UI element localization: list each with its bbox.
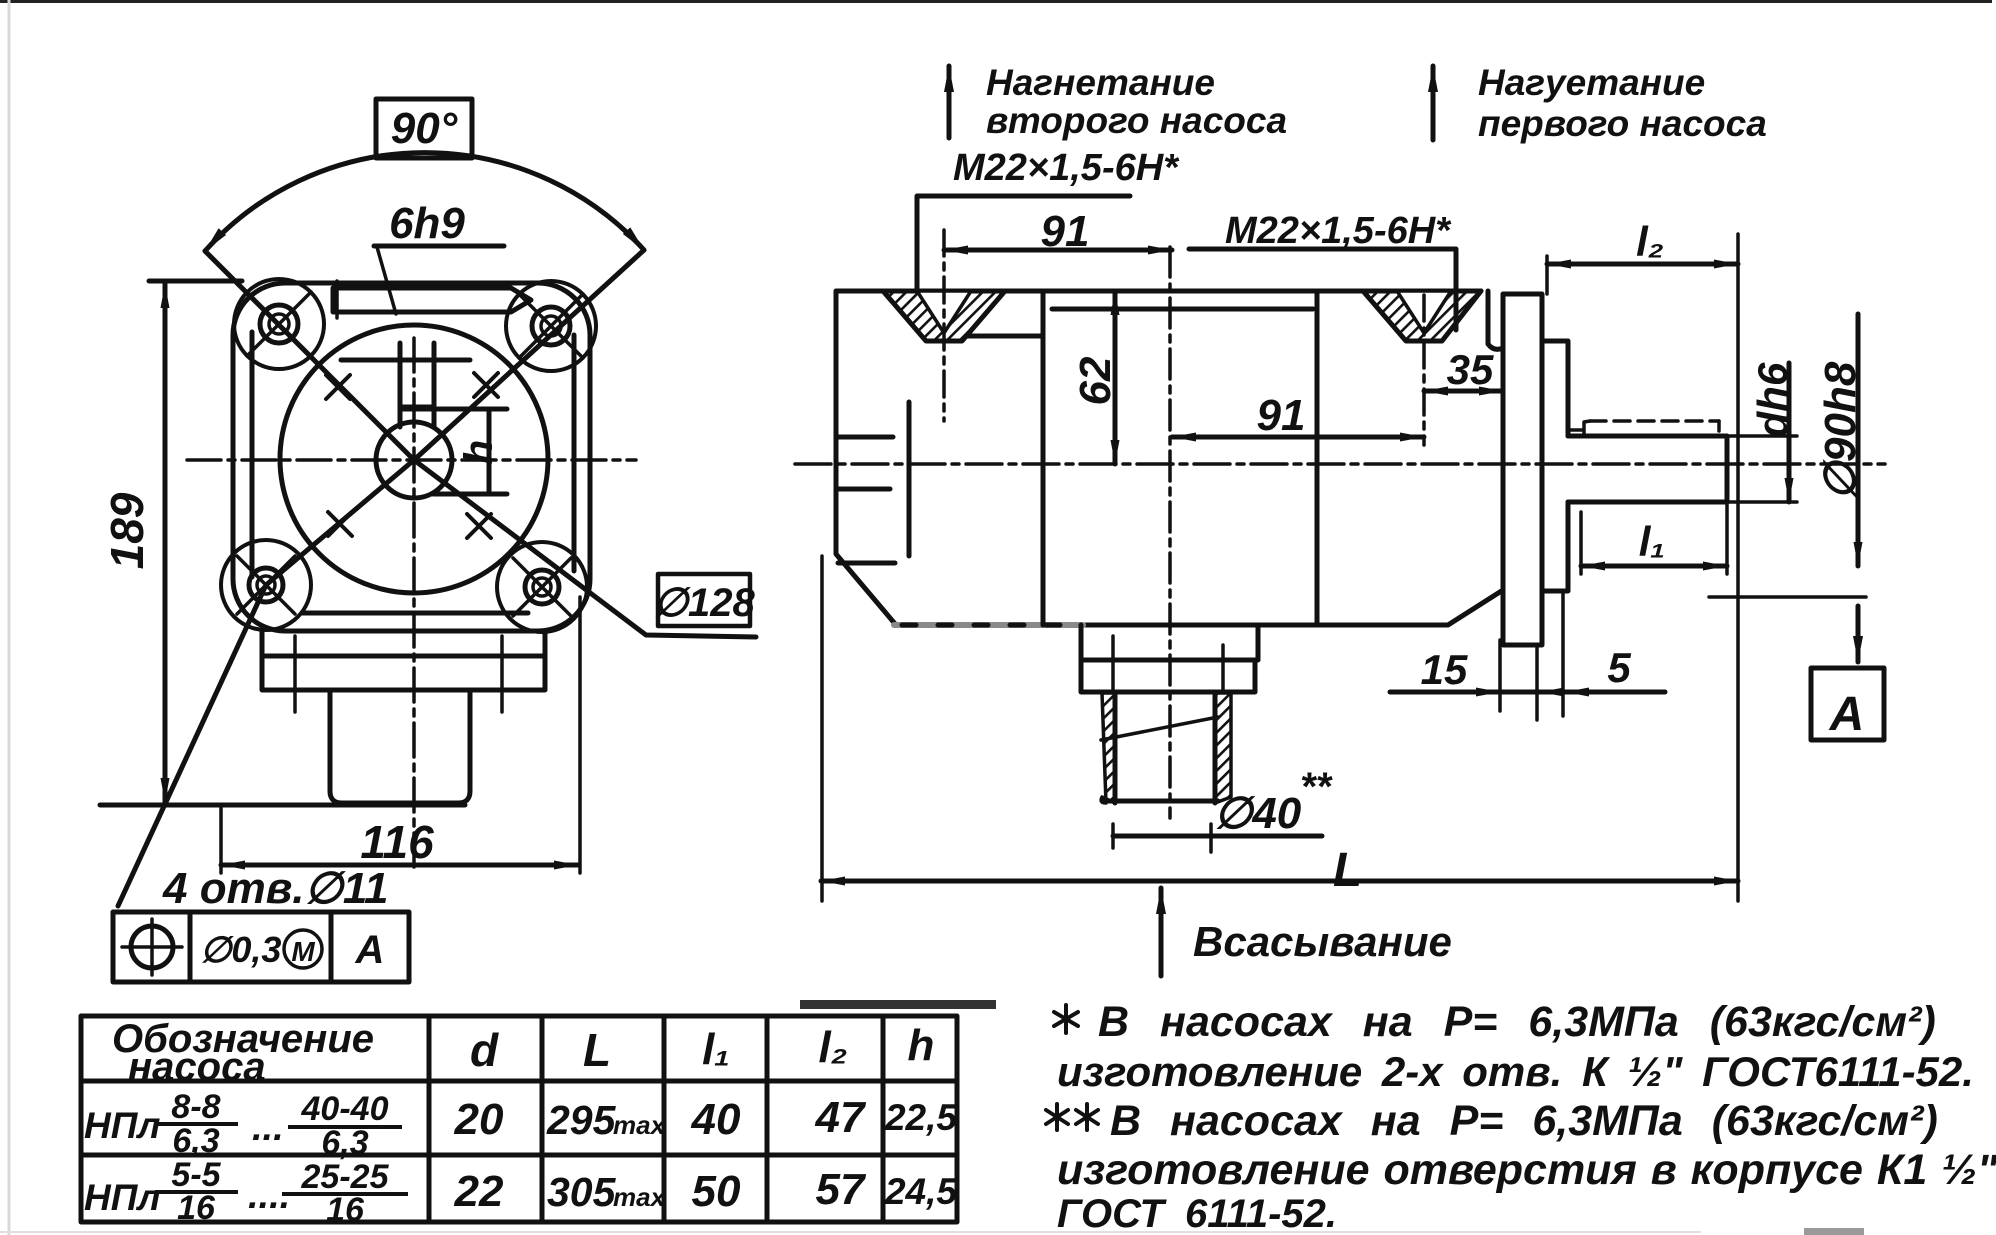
- svg-text:50: 50: [692, 1167, 741, 1216]
- svg-text:В насосах на Р= 6,3МПа (63к: В насосах на Р= 6,3МПа (63кгс/см²): [1110, 1097, 1938, 1145]
- svg-text:91: 91: [1257, 391, 1306, 440]
- svg-text:16: 16: [326, 1191, 365, 1229]
- svg-text:...: ...: [252, 1107, 284, 1149]
- svg-text:24,5: 24,5: [884, 1171, 958, 1212]
- svg-text:М: М: [291, 936, 315, 967]
- svg-text:∅40: ∅40: [1214, 789, 1302, 838]
- svg-text:Нагуетание: Нагуетание: [1478, 62, 1705, 103]
- svg-text:М22×1,5-6Н*: М22×1,5-6Н*: [953, 147, 1180, 189]
- svg-text:max: max: [613, 1110, 667, 1140]
- svg-text:189: 189: [101, 492, 153, 569]
- svg-text:В насосах на Р= 6,3МПа (63кг: В насосах на Р= 6,3МПа (63кгс/см²): [1098, 998, 1936, 1046]
- svg-text:**: **: [1300, 765, 1334, 809]
- svg-text:А: А: [355, 928, 385, 972]
- svg-text:изготовление 2-х отв. К ½" ГО: изготовление 2-х отв. К ½" ГОСТ6111-52.: [1057, 1048, 1974, 1095]
- svg-text:второго насоса: второго насоса: [986, 100, 1287, 141]
- svg-text:4 отв.∅11: 4 отв.∅11: [162, 864, 389, 913]
- svg-text:НПл: НПл: [84, 1177, 160, 1218]
- svg-text:dh6: dh6: [1749, 362, 1796, 437]
- svg-text:изготовление отверстия в кор: изготовление отверстия в корпусе К1 ½": [1057, 1146, 1996, 1194]
- svg-text:max: max: [613, 1182, 667, 1212]
- svg-text:6,3: 6,3: [321, 1124, 368, 1162]
- svg-text:l₁: l₁: [1639, 518, 1665, 565]
- svg-text:Нагнетание: Нагнетание: [986, 62, 1215, 103]
- svg-text:первого насоса: первого насоса: [1478, 103, 1767, 144]
- svg-text:35: 35: [1447, 346, 1494, 393]
- svg-text:Всасывание: Всасывание: [1193, 918, 1452, 965]
- svg-text:22: 22: [454, 1167, 504, 1216]
- svg-text:90°: 90°: [391, 104, 458, 153]
- svg-text:91: 91: [1041, 207, 1090, 256]
- svg-text:l₂: l₂: [818, 1023, 847, 1072]
- svg-text:47: 47: [815, 1093, 867, 1142]
- svg-text:насоса: насоса: [128, 1045, 266, 1089]
- svg-text:l₂: l₂: [1636, 218, 1664, 265]
- svg-text:....: ....: [248, 1175, 290, 1217]
- svg-text:15: 15: [1421, 646, 1468, 693]
- svg-text:М22×1,5-6Н*: М22×1,5-6Н*: [1225, 210, 1452, 252]
- svg-text:116: 116: [360, 816, 434, 868]
- svg-text:62: 62: [1071, 356, 1120, 405]
- svg-text:h: h: [457, 440, 501, 464]
- svg-text:57: 57: [816, 1165, 867, 1214]
- svg-text:L: L: [1333, 844, 1362, 897]
- svg-text:5: 5: [1607, 644, 1631, 691]
- svg-text:ГОСТ 6111-52.: ГОСТ 6111-52.: [1057, 1192, 1337, 1235]
- svg-text:А: А: [1829, 688, 1865, 741]
- svg-text:∅128: ∅128: [653, 581, 755, 625]
- svg-text:d: d: [470, 1024, 499, 1076]
- svg-text:8-8: 8-8: [171, 1088, 220, 1126]
- svg-text:НПл: НПл: [84, 1105, 160, 1146]
- svg-text:40: 40: [691, 1095, 741, 1144]
- svg-text:295: 295: [546, 1097, 617, 1143]
- svg-text:h: h: [908, 1021, 935, 1070]
- svg-text:∅0,3: ∅0,3: [200, 929, 281, 970]
- svg-text:305: 305: [547, 1169, 617, 1215]
- svg-text:6h9: 6h9: [389, 199, 465, 248]
- svg-text:6,3: 6,3: [172, 1122, 219, 1160]
- svg-text:L: L: [583, 1024, 611, 1076]
- svg-text:l₁: l₁: [702, 1025, 730, 1074]
- svg-text:22,5: 22,5: [884, 1097, 958, 1138]
- svg-text:20: 20: [454, 1095, 504, 1144]
- svg-text:16: 16: [177, 1189, 216, 1227]
- svg-text:∅90h8: ∅90h8: [1816, 361, 1865, 500]
- svg-text:40-40: 40-40: [301, 1090, 389, 1128]
